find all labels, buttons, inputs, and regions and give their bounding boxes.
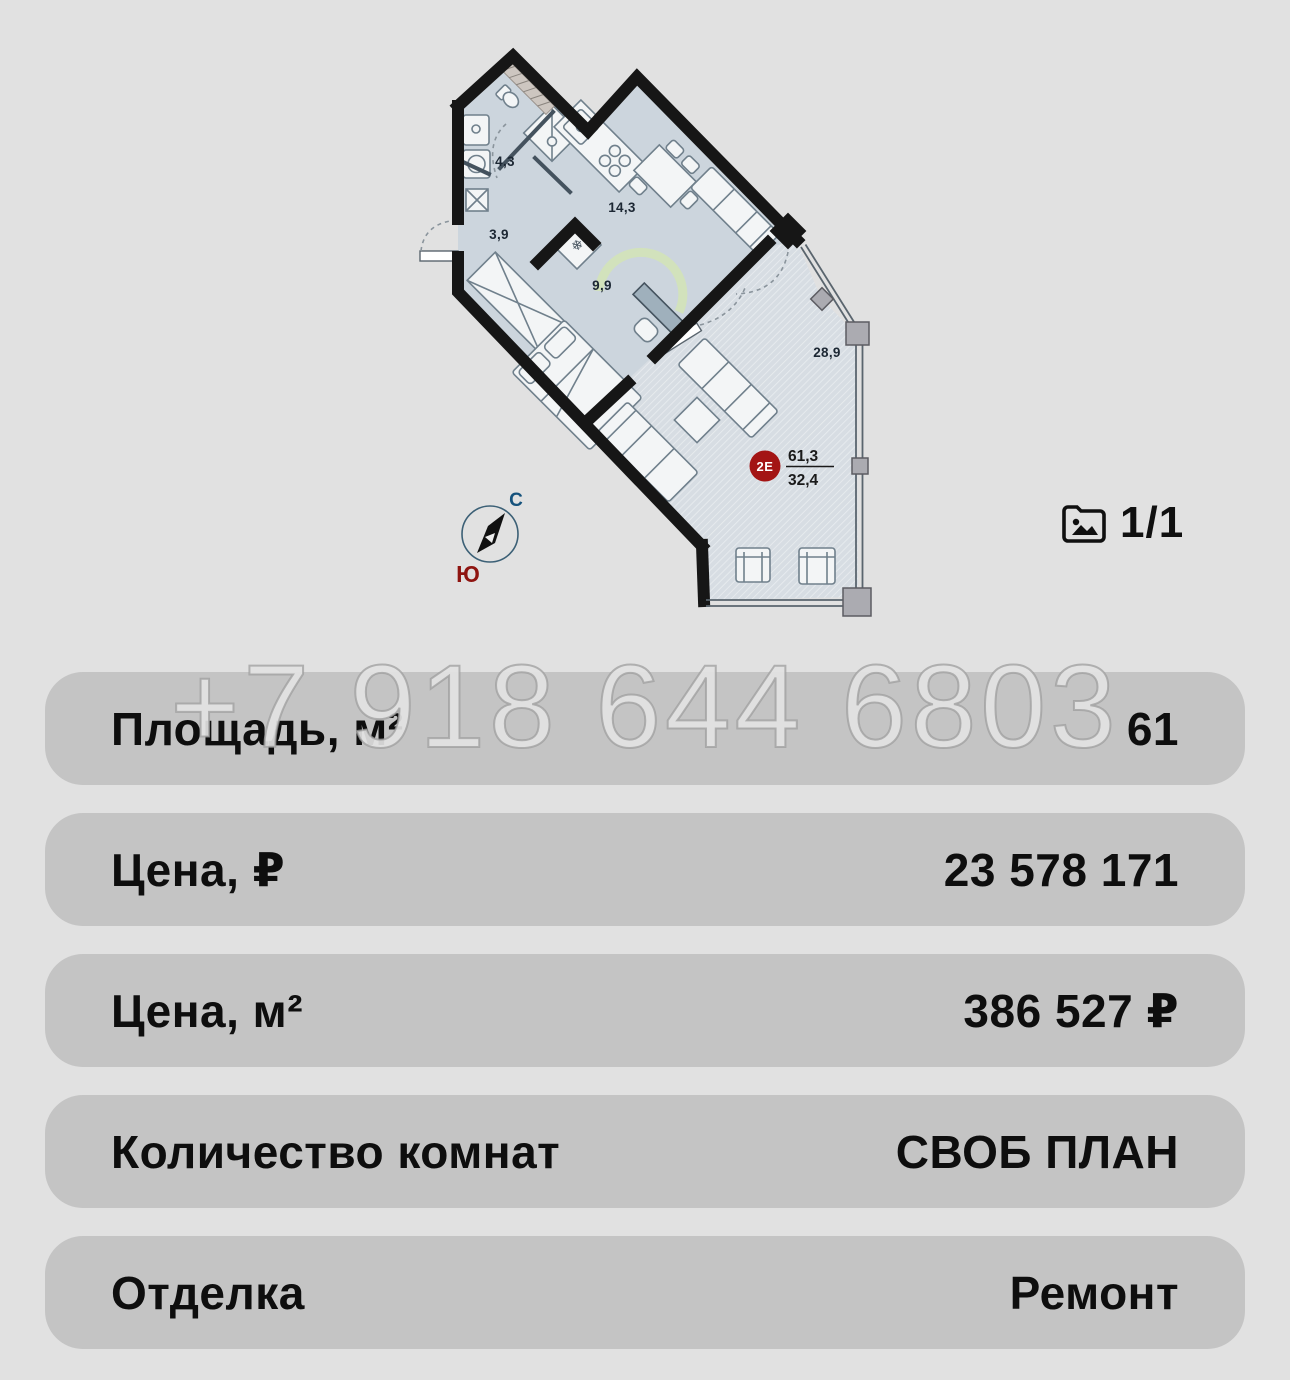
row-area-label: Площадь, м² (111, 702, 404, 756)
compass-icon: С Ю (456, 490, 523, 587)
pillar-mid (852, 458, 868, 474)
row-finish-label: Отделка (111, 1266, 305, 1320)
photo-counter-text: 1/1 (1120, 498, 1184, 548)
row-finish: Отделка Ремонт (45, 1236, 1245, 1349)
row-area-value: 61 (1127, 702, 1179, 756)
photo-folder-icon (1060, 501, 1108, 545)
armchair-1 (736, 548, 770, 582)
compass-north-label: С (509, 490, 523, 511)
row-price-label: Цена, ₽ (111, 843, 285, 897)
area-hallway: 3,9 (489, 227, 509, 242)
area-bedroom: 9,9 (592, 278, 612, 293)
area-bathroom: 4,3 (495, 154, 515, 169)
property-details: Площадь, м² 61 Цена, ₽ 23 578 171 Цена, … (45, 672, 1245, 1377)
row-finish-value: Ремонт (1010, 1266, 1179, 1320)
area-living: 28,9 (813, 345, 840, 360)
compass-south-label: Ю (456, 561, 480, 587)
floorplan-image[interactable]: ❄ (0, 0, 1290, 660)
photo-counter: 1/1 (1060, 498, 1184, 548)
unit-badge-label: 2Е (757, 459, 774, 474)
row-price-per-m2-value: 386 527 ₽ (963, 984, 1179, 1038)
row-price: Цена, ₽ 23 578 171 (45, 813, 1245, 926)
unit-total-area: 61,3 (788, 448, 819, 465)
row-price-value: 23 578 171 (944, 843, 1179, 897)
armchair-2 (799, 548, 835, 584)
row-rooms: Количество комнат СВОБ ПЛАН (45, 1095, 1245, 1208)
electric-panel (466, 189, 488, 211)
row-area: Площадь, м² 61 (45, 672, 1245, 785)
row-rooms-label: Количество комнат (111, 1125, 560, 1179)
unit-living-area: 32,4 (788, 472, 819, 489)
row-price-per-m2-label: Цена, м² (111, 984, 303, 1038)
row-rooms-value: СВОБ ПЛАН (896, 1125, 1179, 1179)
pillar-corner-top (846, 322, 869, 345)
area-kitchen: 14,3 (608, 200, 636, 215)
pillar-corner-bottom (843, 588, 871, 616)
bathroom-sink (463, 115, 489, 145)
listing-card: ❄ (0, 0, 1290, 1380)
row-price-per-m2: Цена, м² 386 527 ₽ (45, 954, 1245, 1067)
